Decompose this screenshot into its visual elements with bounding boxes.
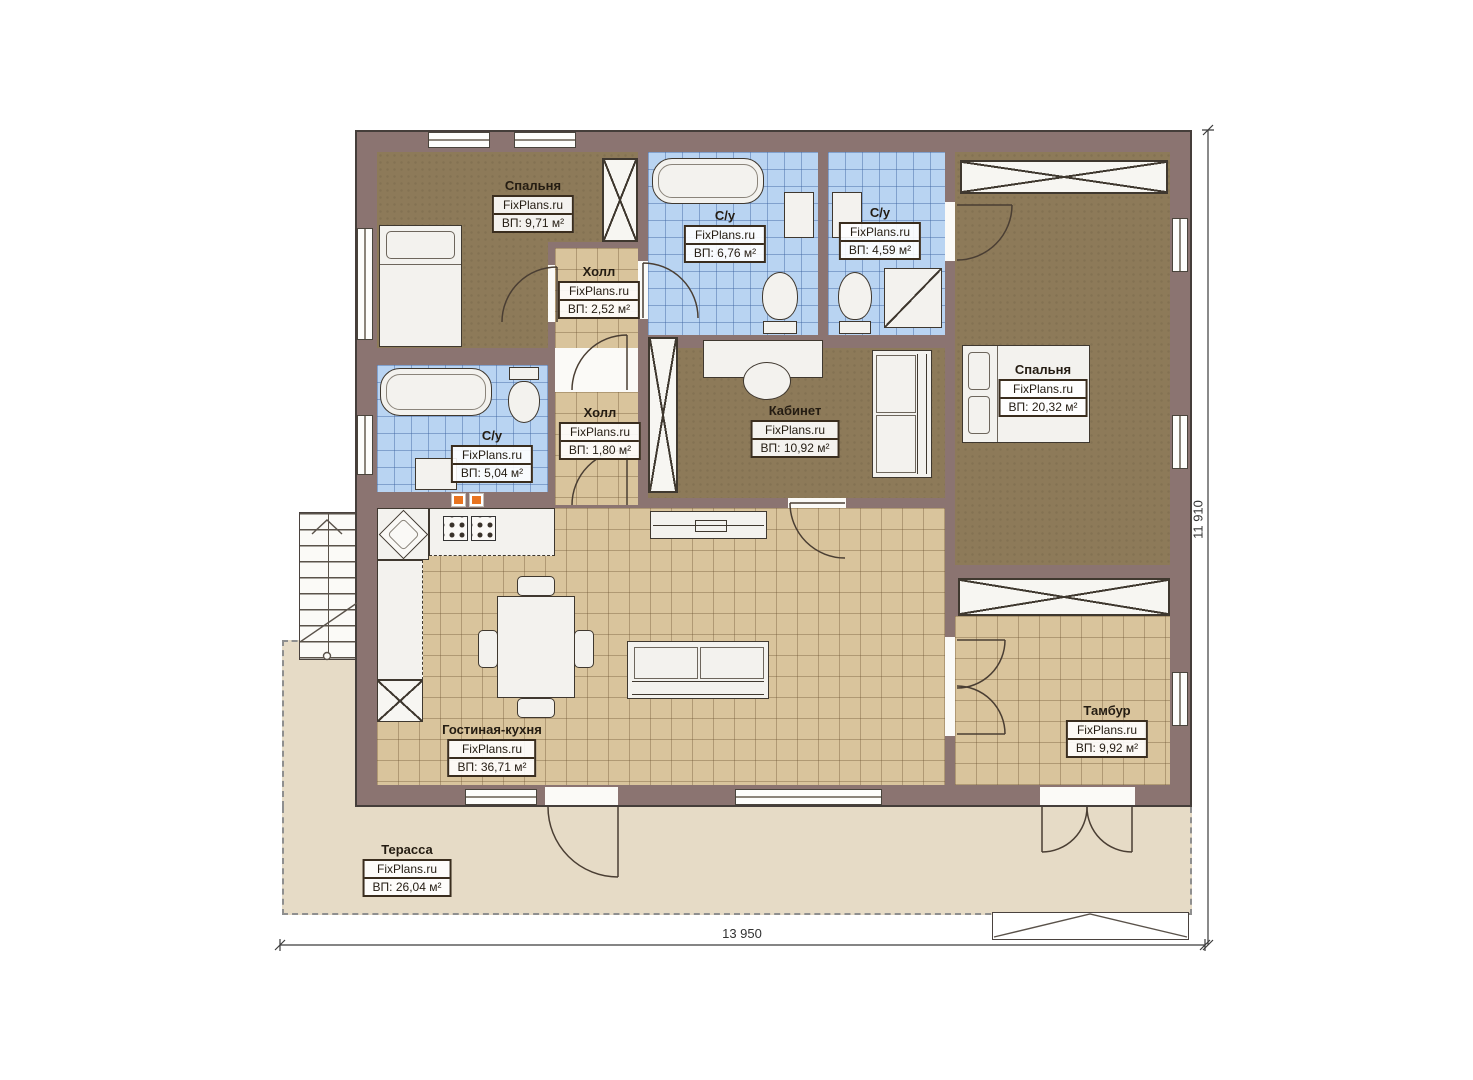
sofa-back: [632, 681, 764, 695]
stairs-rail: [328, 513, 330, 659]
bathtub-inner: [658, 164, 758, 198]
watermark-text: FixPlans.ru: [841, 224, 919, 242]
wall-h-bedroom1: [377, 348, 555, 365]
pillow-icon: [968, 396, 990, 434]
wall-h-bedroom2-bottom: [955, 565, 1170, 578]
watermark-text: FixPlans.ru: [686, 227, 764, 245]
room-area: ВП: 1,80 м²: [561, 442, 639, 458]
room-name: С/у: [451, 428, 533, 443]
tv-stand-icon: [650, 511, 767, 539]
orange-marker-2: [470, 494, 483, 506]
toilet-bowl: [838, 272, 872, 320]
burner-grid: [443, 516, 468, 541]
porch-steps-icon: [992, 912, 1189, 940]
bathtub-inner: [386, 374, 486, 410]
room-area: ВП: 9,71 м²: [494, 215, 572, 231]
room-name: Гостиная-кухня: [442, 722, 542, 737]
chair-icon-dining-right: [574, 630, 594, 668]
sofa-back: [917, 354, 927, 474]
room-label-hall2: Холл FixPlans.ru ВП: 1,80 м²: [559, 405, 641, 460]
bathtub-icon-bath3: [380, 368, 492, 416]
shower-icon-bath2: [884, 268, 942, 328]
bathtub-icon-bath1: [652, 158, 764, 204]
window-left-1: [357, 228, 373, 340]
sink-icon-bath1: [784, 192, 814, 238]
watermark-text: FixPlans.ru: [753, 422, 838, 440]
sofa-cushion: [876, 355, 916, 413]
door-gap-office: [788, 498, 846, 508]
blanket-line: [380, 264, 461, 265]
entrance-door-gap: [1040, 787, 1135, 805]
wardrobe-icon-vestibule: [958, 578, 1170, 616]
wardrobe-icon-office: [648, 337, 678, 493]
hall-connector-floor: [555, 348, 638, 392]
toilet-tank: [509, 367, 539, 380]
room-area: ВП: 9,92 м²: [1068, 740, 1146, 756]
room-name: Тамбур: [1066, 703, 1148, 718]
pillow-icon: [968, 352, 990, 390]
room-area: ВП: 5,04 м²: [453, 465, 531, 481]
dimension-height-label: 11 910: [1191, 490, 1206, 550]
door-gap-bedroom1: [548, 265, 555, 322]
door-gap-vestibule: [945, 637, 955, 736]
watermark-text: FixPlans.ru: [365, 861, 450, 879]
room-name: Холл: [558, 264, 640, 279]
room-label-hall1: Холл FixPlans.ru ВП: 2,52 м²: [558, 264, 640, 319]
door-gap-bedroom2: [945, 202, 955, 261]
toilet-bowl: [508, 381, 540, 423]
window-right-2: [1172, 415, 1188, 469]
terrace-area-left: [282, 640, 355, 807]
room-area: ВП: 10,92 м²: [753, 440, 838, 456]
dimension-width-label: 13 950: [692, 926, 792, 941]
window-right-3: [1172, 672, 1188, 726]
sofa-cushion: [876, 415, 916, 473]
watermark-text: FixPlans.ru: [560, 283, 638, 301]
chair-icon-office: [743, 362, 791, 400]
watermark-text: FixPlans.ru: [450, 741, 535, 759]
toilet-tank: [763, 321, 797, 334]
orange-marker-1: [452, 494, 465, 506]
toilet-icon-bath2: [836, 272, 874, 334]
kitchen-sink-icon: [379, 510, 428, 559]
watermark-text: FixPlans.ru: [453, 447, 531, 465]
room-name: С/у: [839, 205, 921, 220]
wardrobe-icon-bedroom2: [960, 160, 1168, 194]
kitchen-cabinet-icon: [377, 680, 423, 722]
watermark-text: FixPlans.ru: [1068, 722, 1146, 740]
toilet-icon-bath3: [506, 367, 542, 423]
room-name: Кабинет: [751, 403, 840, 418]
pillow-icon: [386, 231, 455, 259]
room-area: ВП: 4,59 м²: [841, 242, 919, 258]
sofa-cushion: [634, 647, 698, 679]
room-area: ВП: 6,76 м²: [686, 245, 764, 261]
room-label-bath2: С/у FixPlans.ru ВП: 4,59 м²: [839, 205, 921, 260]
bed-icon-bedroom1: [379, 225, 462, 347]
room-name: Холл: [559, 405, 641, 420]
room-area: ВП: 26,04 м²: [365, 879, 450, 895]
room-label-living-kitchen: Гостиная-кухня FixPlans.ru ВП: 36,71 м²: [442, 722, 542, 777]
window-bottom-2: [735, 789, 882, 805]
room-label-terrace: Терасса FixPlans.ru ВП: 26,04 м²: [363, 842, 452, 897]
tv-icon: [695, 520, 727, 532]
watermark-text: FixPlans.ru: [1001, 381, 1086, 399]
room-area: ВП: 36,71 м²: [450, 759, 535, 775]
room-vestibule-floor: [955, 616, 1170, 785]
toilet-tank: [839, 321, 871, 334]
chair-icon-dining-bottom: [517, 698, 555, 718]
sofa-icon-living: [627, 641, 769, 699]
room-name: С/у: [684, 208, 766, 223]
kitchen-left-counter: [377, 560, 423, 680]
room-label-bedroom1: Спальня FixPlans.ru ВП: 9,71 м²: [492, 178, 574, 233]
toilet-bowl: [762, 272, 798, 320]
sofa-cushion: [700, 647, 764, 679]
window-right-1: [1172, 218, 1188, 272]
room-label-bath3: С/у FixPlans.ru ВП: 5,04 м²: [451, 428, 533, 483]
room-area: ВП: 2,52 м²: [560, 301, 638, 317]
chair-icon-dining-left: [478, 630, 498, 668]
sofa-icon-office: [872, 350, 932, 478]
wall-hall-top: [555, 242, 638, 248]
room-label-bath1: С/у FixPlans.ru ВП: 6,76 м²: [684, 208, 766, 263]
room-name: Спальня: [999, 362, 1088, 377]
window-top-1: [428, 132, 490, 148]
stairs-icon: [299, 512, 356, 660]
dining-table-icon: [497, 596, 575, 698]
room-name: Терасса: [363, 842, 452, 857]
room-label-office: Кабинет FixPlans.ru ВП: 10,92 м²: [751, 403, 840, 458]
sink-basin: [387, 518, 420, 551]
watermark-text: FixPlans.ru: [494, 197, 572, 215]
window-top-2: [514, 132, 576, 148]
chair-icon-dining-top: [517, 576, 555, 596]
window-bottom-1: [465, 789, 537, 805]
terrace-door-gap: [545, 787, 618, 805]
window-left-2: [357, 415, 373, 475]
kitchen-corner-counter: [377, 508, 429, 560]
room-label-vestibule: Тамбур FixPlans.ru ВП: 9,92 м²: [1066, 703, 1148, 758]
stove-icon: [441, 512, 499, 552]
room-label-bedroom2: Спальня FixPlans.ru ВП: 20,32 м²: [999, 362, 1088, 417]
watermark-text: FixPlans.ru: [561, 424, 639, 442]
room-name: Спальня: [492, 178, 574, 193]
wardrobe-icon-bedroom1: [602, 158, 638, 242]
burner-grid: [471, 516, 496, 541]
floor-plan-canvas: Спальня FixPlans.ru ВП: 9,71 м² С/у FixP…: [0, 0, 1473, 1080]
toilet-icon-bath1: [760, 272, 800, 334]
wall-v2: [818, 152, 828, 335]
room-area: ВП: 20,32 м²: [1001, 399, 1086, 415]
